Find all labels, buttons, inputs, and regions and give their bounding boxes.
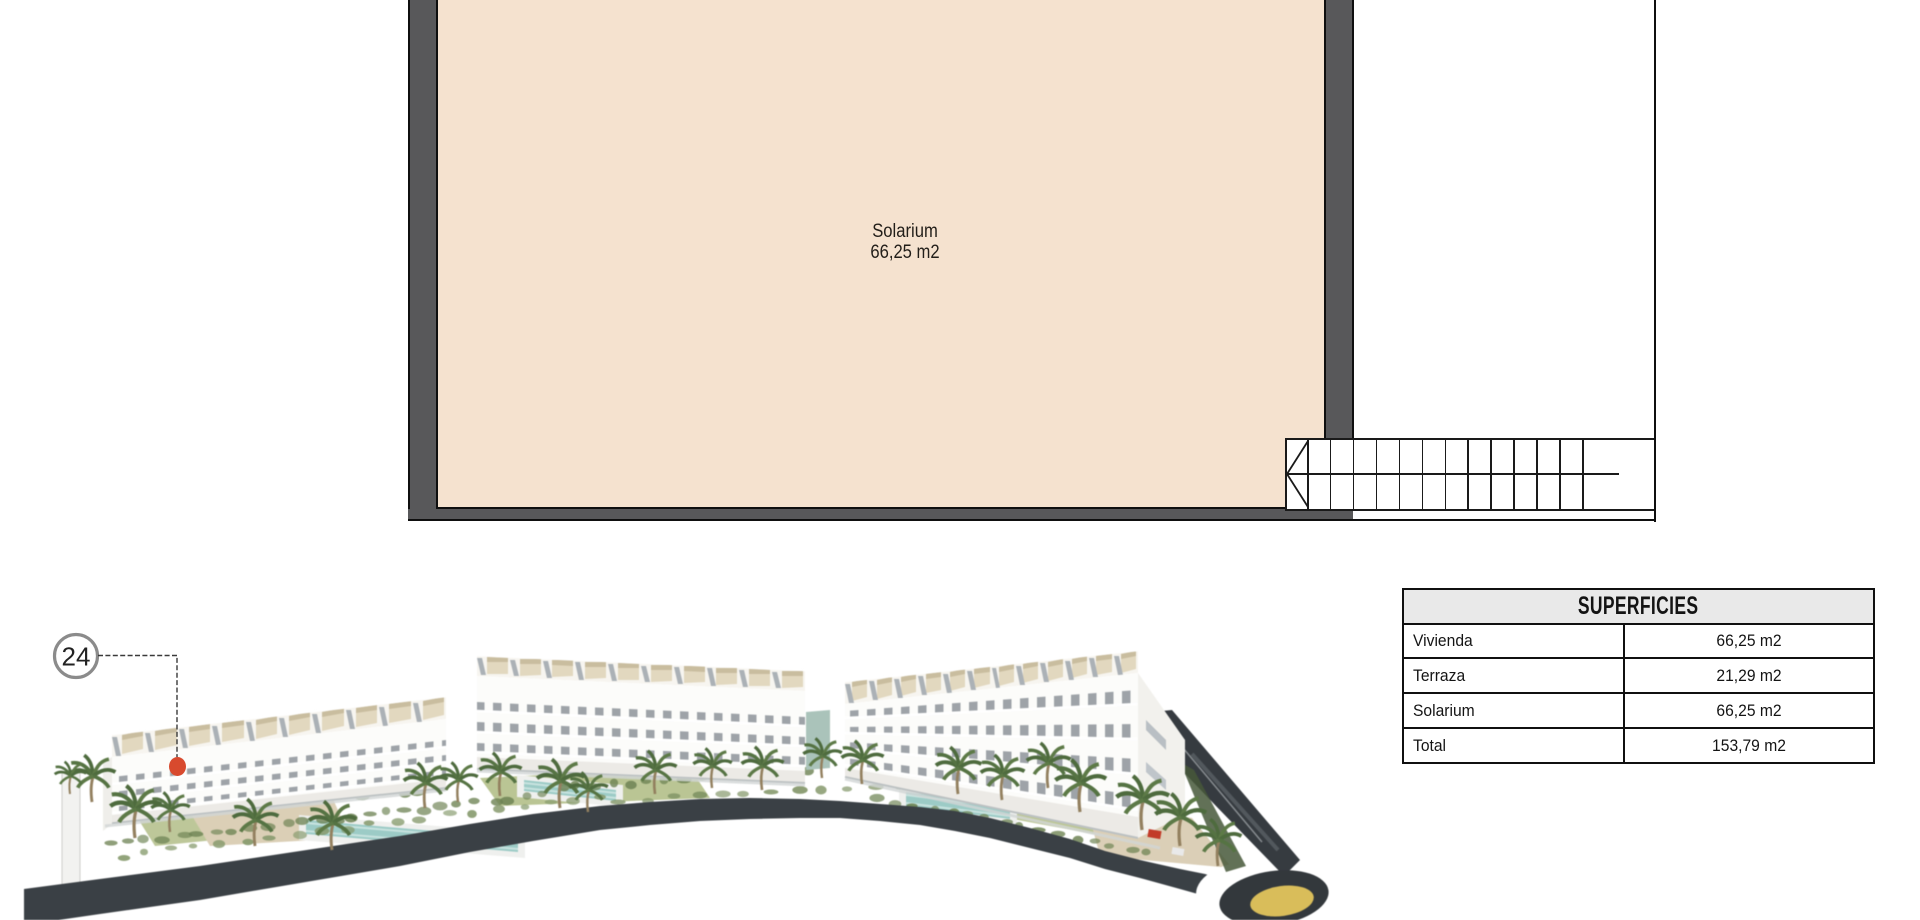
svg-text:24: 24 — [62, 642, 91, 672]
